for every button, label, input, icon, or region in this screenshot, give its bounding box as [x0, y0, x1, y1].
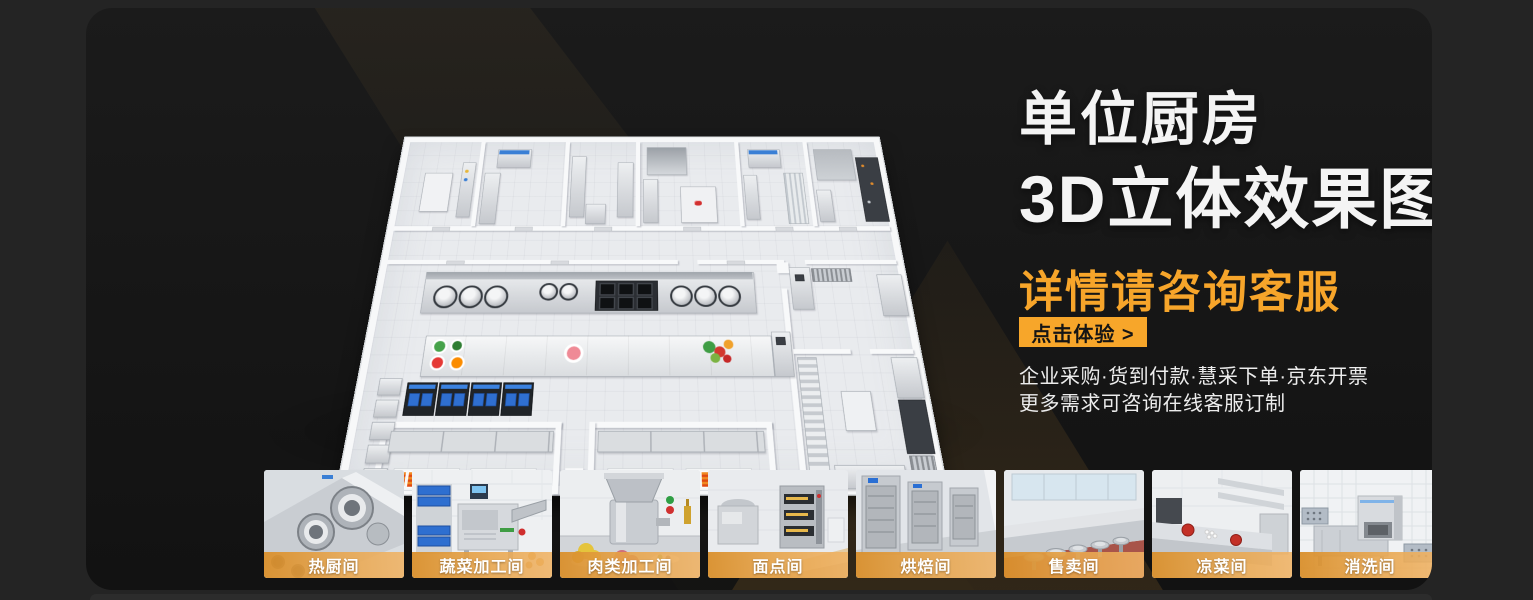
cabinet — [813, 149, 856, 180]
wall — [387, 260, 678, 264]
thumbnail-vegetable-processing[interactable]: 蔬菜加工间 — [412, 470, 552, 578]
thumbnail-label: 面点间 — [708, 552, 848, 578]
cta-button[interactable]: 点击体验 > — [1019, 317, 1147, 347]
wire-rack — [783, 173, 809, 224]
thumbnail-washing-room[interactable]: 消洗间 — [1300, 470, 1432, 578]
refrigeration-unit — [898, 400, 936, 454]
thumbnail-cold-dish-room[interactable]: 凉菜间 — [1152, 470, 1292, 578]
steamer — [435, 382, 470, 415]
info-line-1: 企业采购·货到付款·慧采下单·京东开票 — [1019, 360, 1368, 389]
door — [551, 261, 570, 265]
steamer — [500, 382, 534, 415]
thumbnail-label: 凉菜间 — [1152, 552, 1292, 578]
meat-plate — [694, 201, 702, 206]
info-line-2: 更多需求可咨询在线客服订制 — [1019, 387, 1286, 416]
floorplan-floor — [336, 137, 947, 494]
thumbnail-label: 热厨间 — [264, 552, 404, 578]
door — [446, 261, 465, 265]
door — [594, 227, 612, 232]
steamer — [402, 382, 438, 415]
thumbnail-pastry-room[interactable]: 面点间 — [708, 470, 848, 578]
thumbnail-strip: 热厨间 蔬菜加 — [264, 470, 1432, 578]
banner-page: { "hero": { "title_line1": "单位厨房", "titl… — [0, 0, 1533, 599]
promo-banner-panel: 单位厨房 3D立体效果图 详情请咨询客服 点击体验 > 企业采购·货到付款·慧采… — [86, 8, 1432, 590]
alcove-counter — [387, 431, 553, 453]
wall — [805, 260, 897, 264]
door — [727, 261, 746, 265]
thumbnail-label: 肉类加工间 — [560, 552, 700, 578]
wall — [636, 142, 641, 226]
thumbnail-label: 售卖间 — [1004, 552, 1144, 578]
wall — [870, 349, 914, 354]
rack — [811, 268, 852, 281]
door — [839, 227, 858, 232]
thumbnail-label: 蔬菜加工间 — [412, 552, 552, 578]
wall — [589, 422, 772, 428]
alcove-counter — [597, 431, 765, 453]
door — [515, 227, 533, 232]
wall — [382, 422, 562, 428]
prep-table — [419, 173, 454, 212]
door — [432, 227, 451, 232]
center-table — [841, 391, 877, 431]
thumbnail-serving-room[interactable]: 售卖间 — [1004, 470, 1144, 578]
column — [776, 262, 789, 273]
thumbnail-baking-room[interactable]: 烘焙间 — [856, 470, 996, 578]
wall — [793, 349, 851, 354]
door — [775, 227, 793, 232]
hood-unit — [647, 147, 687, 175]
kitchen-floorplan-3d — [375, 106, 909, 480]
thumbnail-label: 消洗间 — [1300, 552, 1432, 578]
thumbnail-meat-processing[interactable]: 肉类加工间 — [560, 470, 700, 578]
wok-burner — [694, 286, 718, 307]
subtitle: 详情请咨询客服 — [1019, 256, 1341, 320]
thumbnail-hot-kitchen[interactable]: 热厨间 — [264, 470, 404, 578]
trolley — [377, 378, 403, 395]
trolley — [373, 400, 399, 418]
wok-burner — [718, 286, 742, 307]
next-section-edge — [90, 594, 1432, 600]
door — [683, 227, 701, 232]
wall — [394, 226, 891, 231]
dark-shelf — [855, 157, 890, 221]
steamer — [468, 382, 502, 415]
page-title-line2: 3D立体效果图 — [1019, 146, 1432, 242]
thumbnail-label: 烘焙间 — [856, 552, 996, 578]
page-title-line1: 单位厨房 — [1019, 72, 1263, 156]
wok-burner — [670, 286, 693, 307]
